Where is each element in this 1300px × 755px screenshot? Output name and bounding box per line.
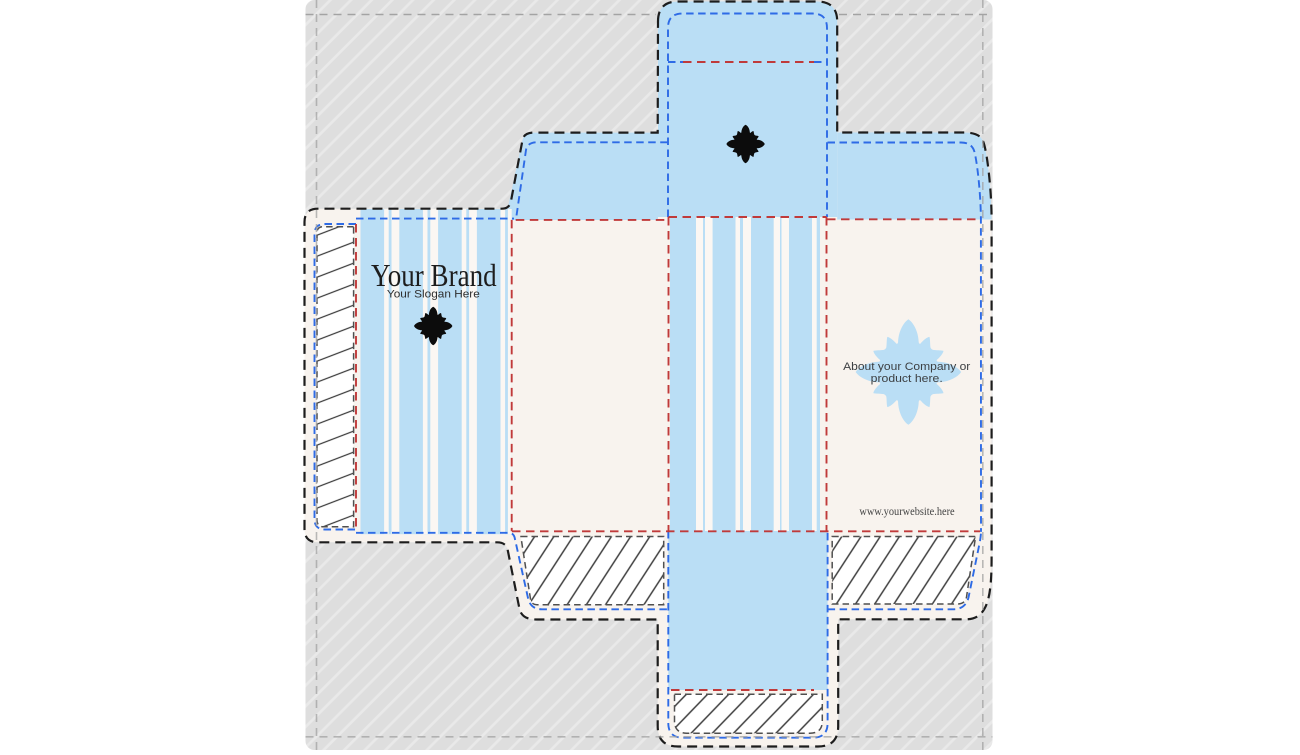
- svg-text:www.yourwebsite.here: www.yourwebsite.here: [859, 504, 954, 518]
- svg-text:Your Slogan Here: Your Slogan Here: [387, 289, 480, 301]
- svg-text:About your Company or: About your Company or: [843, 361, 971, 373]
- svg-text:product here.: product here.: [871, 373, 943, 385]
